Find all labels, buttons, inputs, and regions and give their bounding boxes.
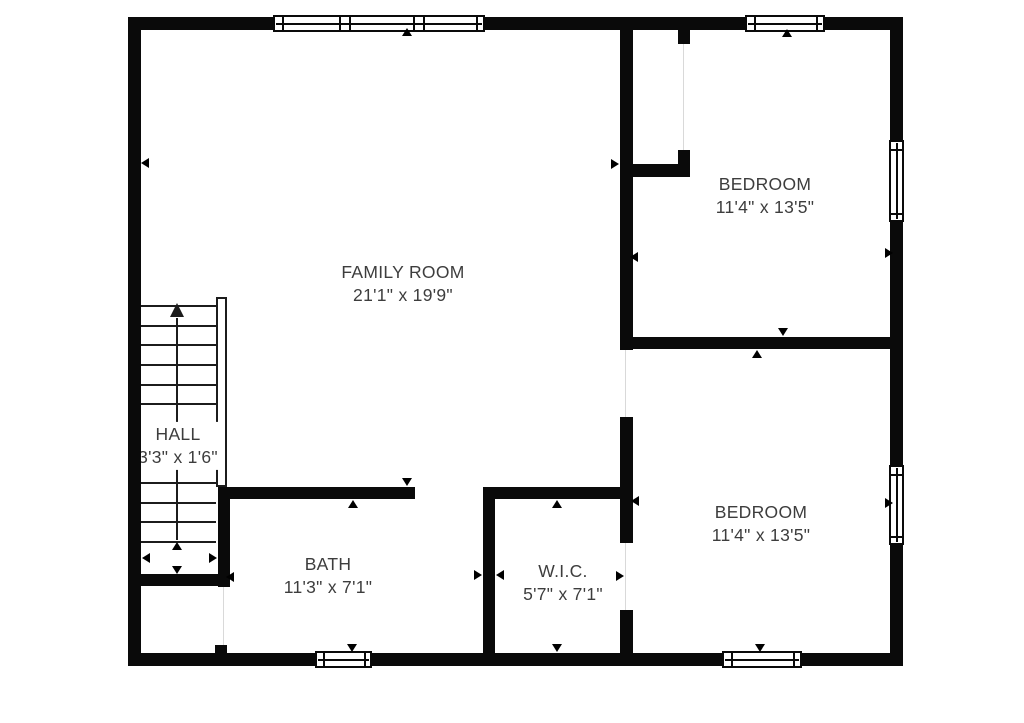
window-mullion	[891, 213, 902, 215]
room-label-hall: HALL 3'3" x 1'6"	[135, 422, 221, 470]
wall-segment	[678, 30, 690, 44]
dimension-arrow-icon	[172, 566, 182, 574]
room-name: HALL	[138, 423, 218, 446]
dimension-arrow-icon	[611, 159, 619, 169]
window-mullion	[731, 653, 733, 666]
wall-segment	[633, 337, 890, 349]
dimension-arrow-icon	[172, 542, 182, 550]
dimension-arrow-icon	[402, 478, 412, 486]
door-opening	[625, 350, 626, 417]
room-label-bedroom-1: BEDROOM 11'4" x 13'5"	[713, 172, 818, 220]
dimension-arrow-icon	[631, 496, 639, 506]
stair-tread	[141, 364, 216, 366]
room-dims: 21'1" x 19'9"	[341, 284, 464, 307]
wall-segment	[483, 487, 633, 499]
room-label-family-room: FAMILY ROOM 21'1" x 19'9"	[338, 260, 467, 308]
wall-segment	[620, 30, 633, 350]
window-mullion	[323, 653, 325, 666]
dimension-arrow-icon	[402, 28, 412, 36]
room-label-wic: W.I.C. 5'7" x 7'1"	[520, 559, 606, 607]
room-dims: 5'7" x 7'1"	[523, 583, 603, 606]
window-mullion	[423, 17, 425, 30]
room-dims: 3'3" x 1'6"	[138, 446, 218, 469]
wall-segment	[215, 645, 227, 653]
stair-tread	[141, 403, 216, 405]
dimension-arrow-icon	[226, 572, 234, 582]
wall-segment	[218, 487, 415, 499]
dimension-arrow-icon	[474, 570, 482, 580]
stair-tread	[141, 344, 216, 346]
window-mullion	[282, 17, 284, 30]
window-mullion	[891, 536, 902, 538]
dimension-arrow-icon	[782, 29, 792, 37]
door-opening	[683, 44, 684, 150]
room-name: FAMILY ROOM	[341, 261, 464, 284]
wall-segment	[633, 164, 690, 177]
wall-segment	[890, 17, 903, 666]
dimension-arrow-icon	[142, 553, 150, 563]
window-glass-line	[276, 23, 482, 25]
dimension-arrow-icon	[496, 570, 504, 580]
wall-segment	[678, 150, 690, 164]
stair-tread	[141, 325, 216, 327]
window-glass-line	[896, 468, 898, 542]
window-mullion	[339, 17, 341, 30]
window-mullion	[891, 149, 902, 151]
stair-tread	[141, 521, 216, 523]
dimension-arrow-icon	[755, 644, 765, 652]
dimension-arrow-icon	[885, 498, 893, 508]
stair-arrow-head-icon	[170, 303, 184, 317]
wall-segment	[128, 574, 225, 586]
window-glass-line	[896, 143, 898, 219]
window-mullion	[793, 653, 795, 666]
dimension-arrow-icon	[778, 328, 788, 336]
window-mullion	[476, 17, 478, 30]
wall-segment	[620, 417, 633, 543]
door-opening	[625, 543, 626, 610]
dimension-arrow-icon	[552, 500, 562, 508]
window-glass-line	[748, 23, 822, 25]
window-glass-line	[725, 659, 799, 661]
room-dims: 11'3" x 7'1"	[284, 576, 373, 599]
room-label-bath: BATH 11'3" x 7'1"	[281, 552, 376, 600]
dimension-arrow-icon	[885, 248, 893, 258]
room-label-bedroom-2: BEDROOM 11'4" x 13'5"	[709, 500, 814, 548]
window-mullion	[349, 17, 351, 30]
room-dims: 11'4" x 13'5"	[712, 524, 811, 547]
floor-plan: FAMILY ROOM 21'1" x 19'9" BEDROOM 11'4" …	[0, 0, 1024, 723]
dimension-arrow-icon	[348, 500, 358, 508]
stair-tread	[141, 482, 216, 484]
stair-tread	[141, 384, 216, 386]
dimension-arrow-icon	[141, 158, 149, 168]
dimension-arrow-icon	[552, 644, 562, 652]
wall-segment	[620, 610, 633, 653]
stair-tread	[141, 502, 216, 504]
wall-segment	[483, 499, 495, 653]
dimension-arrow-icon	[616, 571, 624, 581]
window-mullion	[816, 17, 818, 30]
window-glass-line	[318, 659, 369, 661]
door-opening	[223, 587, 224, 645]
room-name: BEDROOM	[712, 501, 811, 524]
dimension-arrow-icon	[752, 350, 762, 358]
window-mullion	[891, 474, 902, 476]
window-mullion	[754, 17, 756, 30]
room-name: BEDROOM	[716, 173, 815, 196]
dimension-arrow-icon	[209, 553, 217, 563]
room-dims: 11'4" x 13'5"	[716, 196, 815, 219]
dimension-arrow-icon	[347, 644, 357, 652]
wall-segment	[128, 17, 141, 666]
room-name: BATH	[284, 553, 373, 576]
window-mullion	[413, 17, 415, 30]
dimension-arrow-icon	[630, 252, 638, 262]
room-name: W.I.C.	[523, 560, 603, 583]
window-mullion	[364, 653, 366, 666]
